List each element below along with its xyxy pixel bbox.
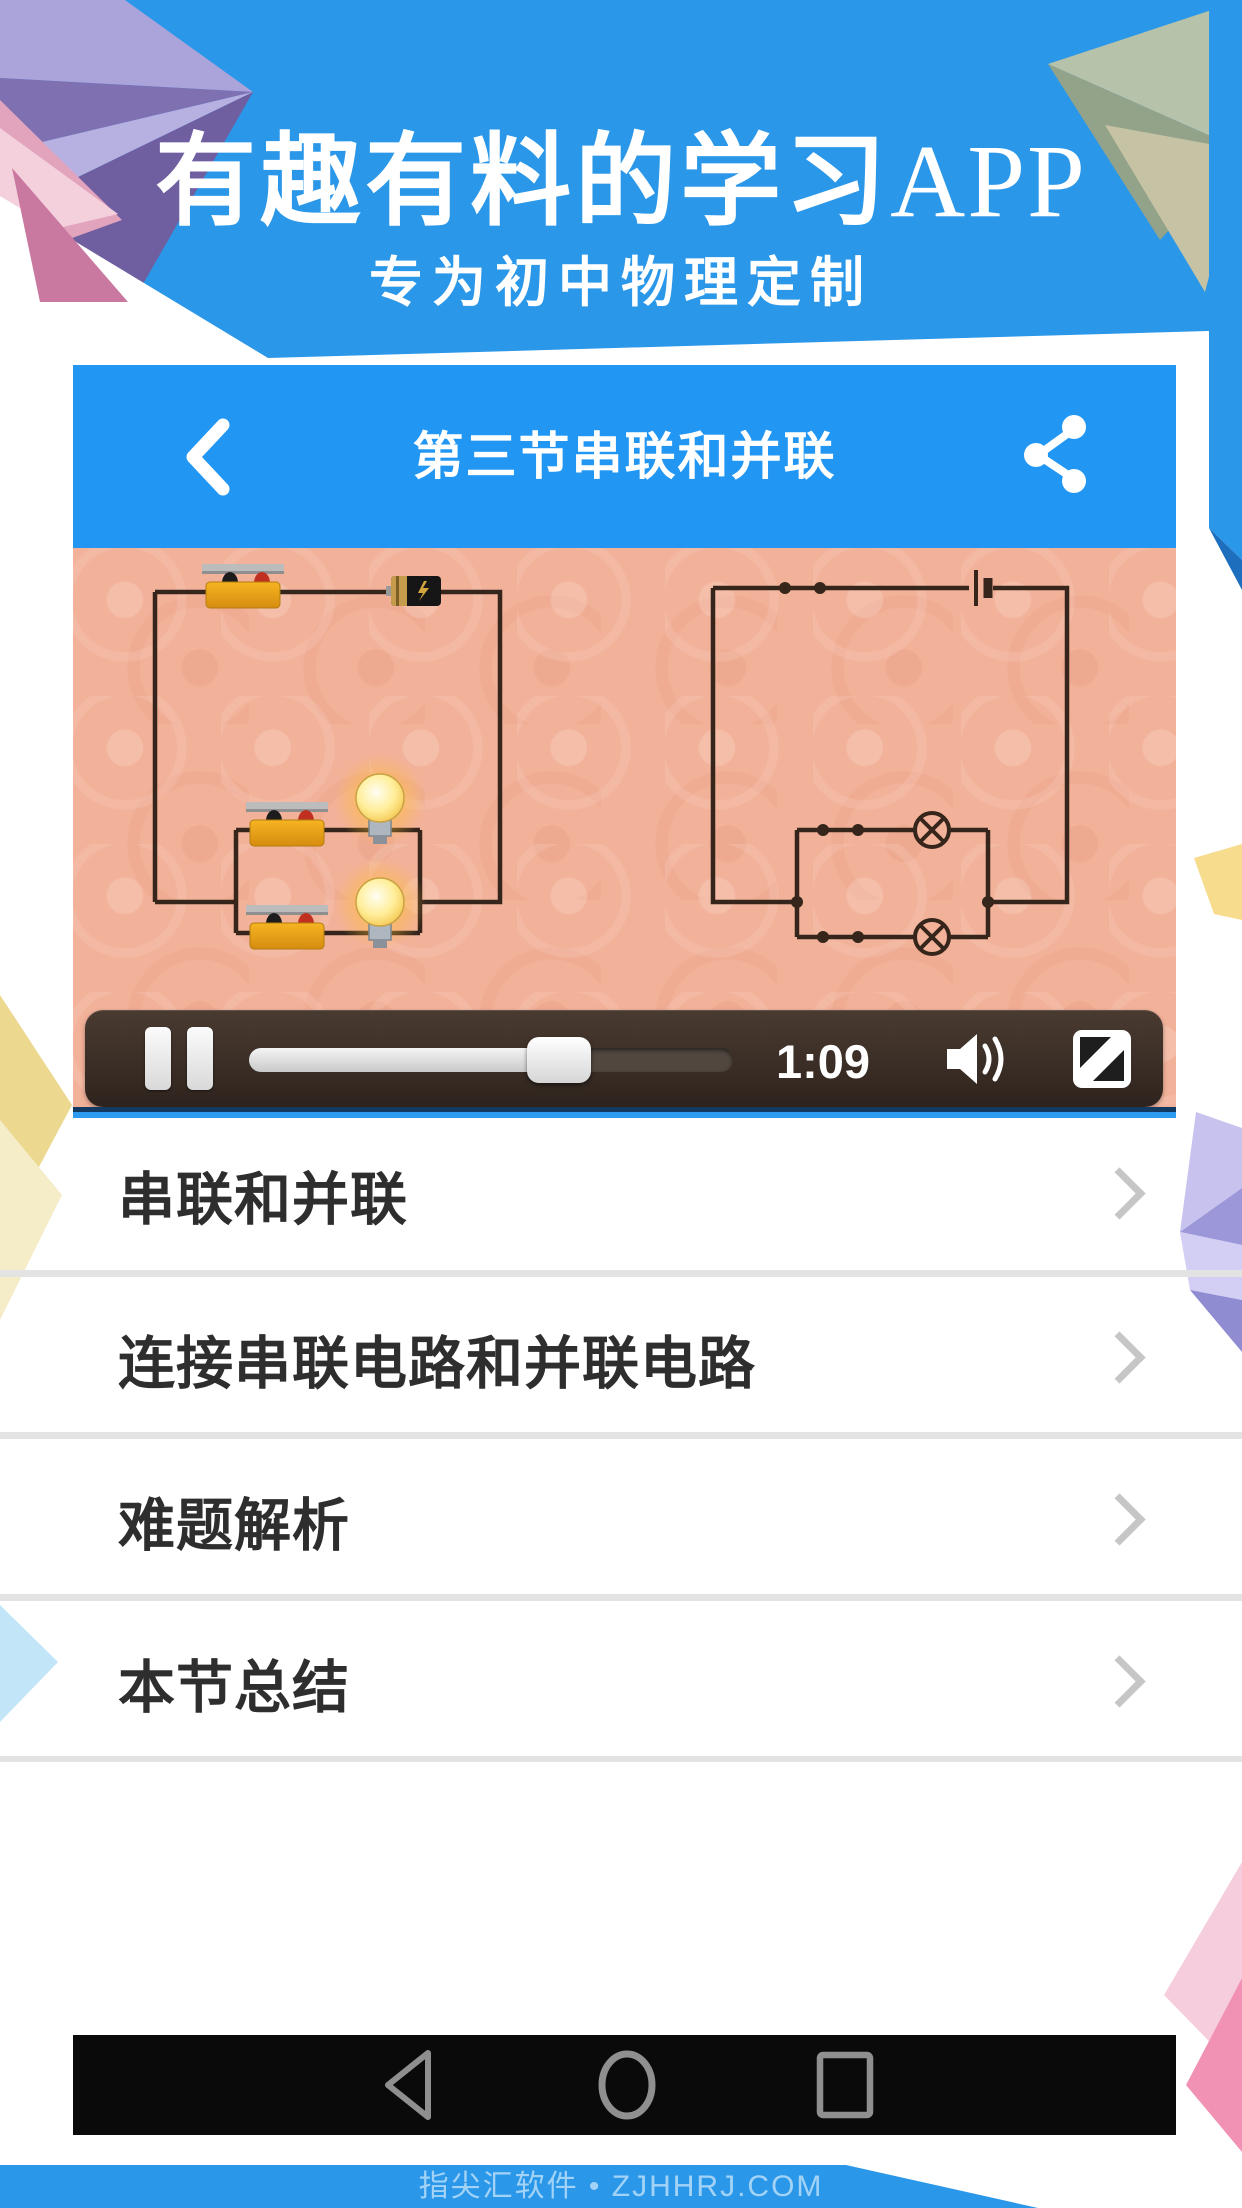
share-button[interactable] — [1016, 408, 1108, 500]
player-accent-strip — [73, 1112, 1176, 1118]
switch-branch-1 — [246, 802, 328, 846]
decor-cyan-left — [0, 1605, 58, 1722]
watermark: 指尖汇软件 • ZJHHRJ.COM — [0, 2165, 1242, 2208]
hero-title-en: APP — [890, 124, 1087, 239]
back-button[interactable] — [185, 418, 233, 496]
hero-title-cn: 有趣有料的学习 — [155, 126, 890, 238]
player-controls: 1:09 — [85, 1010, 1163, 1107]
list-item-1[interactable]: 串联和并联 — [73, 1122, 1176, 1268]
chevron-right-icon — [1093, 1493, 1145, 1545]
speaker-icon — [947, 1034, 1001, 1084]
bulb-glowing-2 — [334, 858, 426, 950]
progress-knob[interactable] — [527, 1037, 591, 1083]
appbar: 第三节串联和并联 — [73, 365, 1176, 548]
back-triangle-icon[interactable] — [388, 2053, 428, 2117]
home-circle-icon[interactable] — [602, 2054, 652, 2116]
schematic-lamp-icons — [915, 813, 949, 954]
pause-icon[interactable] — [187, 1027, 213, 1090]
list-item-2[interactable]: 连接串联电路和并联电路 — [73, 1286, 1176, 1432]
android-navbar — [73, 2035, 1176, 2135]
switch-top — [202, 564, 284, 608]
list-item-label: 串联和并联 — [118, 1122, 408, 1268]
appbar-title: 第三节串联和并联 — [73, 365, 1176, 548]
bulb-glowing-1 — [334, 754, 426, 846]
hero-subtitle: 专为初中物理定制 — [0, 238, 1242, 317]
switch-branch-2 — [246, 905, 328, 949]
left-circuit-wires — [155, 592, 500, 933]
chevron-right-icon — [1093, 1655, 1145, 1707]
page: 有趣有料的学习APP 专为初中物理定制 第三节串联和并联 — [0, 0, 1242, 2208]
time-display: 1:09 — [753, 1034, 893, 1089]
battery-icon — [386, 576, 441, 606]
list-item-label: 连接串联电路和并联电路 — [118, 1286, 756, 1432]
progress-track[interactable] — [249, 1048, 733, 1072]
list-item-4[interactable]: 本节总结 — [73, 1610, 1176, 1756]
share-icon — [1024, 415, 1086, 493]
divider — [0, 1270, 1242, 1277]
chevron-right-icon — [1093, 1167, 1145, 1219]
divider — [0, 1432, 1242, 1439]
chevron-right-icon — [1093, 1331, 1145, 1383]
pause-icon[interactable] — [145, 1027, 171, 1090]
list-item-label: 难题解析 — [118, 1448, 350, 1594]
decor-lavender-right-4 — [1190, 1290, 1242, 1352]
schematic-switch-dots — [779, 582, 994, 943]
list-item-label: 本节总结 — [118, 1610, 350, 1756]
divider — [0, 1756, 1242, 1762]
recent-square-icon[interactable] — [820, 2055, 870, 2115]
video-frame[interactable]: 1:09 — [73, 548, 1176, 1118]
fullscreen-button[interactable] — [1073, 1030, 1131, 1088]
schematic-battery-icon — [976, 570, 988, 606]
right-circuit-wires — [713, 588, 1067, 937]
progress-fill — [249, 1048, 559, 1072]
fullscreen-icon — [1073, 1030, 1131, 1088]
volume-button[interactable] — [945, 1031, 1011, 1087]
hero-title: 有趣有料的学习APP — [0, 100, 1242, 246]
list-item-3[interactable]: 难题解析 — [73, 1448, 1176, 1594]
divider — [0, 1594, 1242, 1601]
chevron-left-icon — [193, 425, 223, 489]
decor-yellow-right — [1194, 844, 1242, 920]
